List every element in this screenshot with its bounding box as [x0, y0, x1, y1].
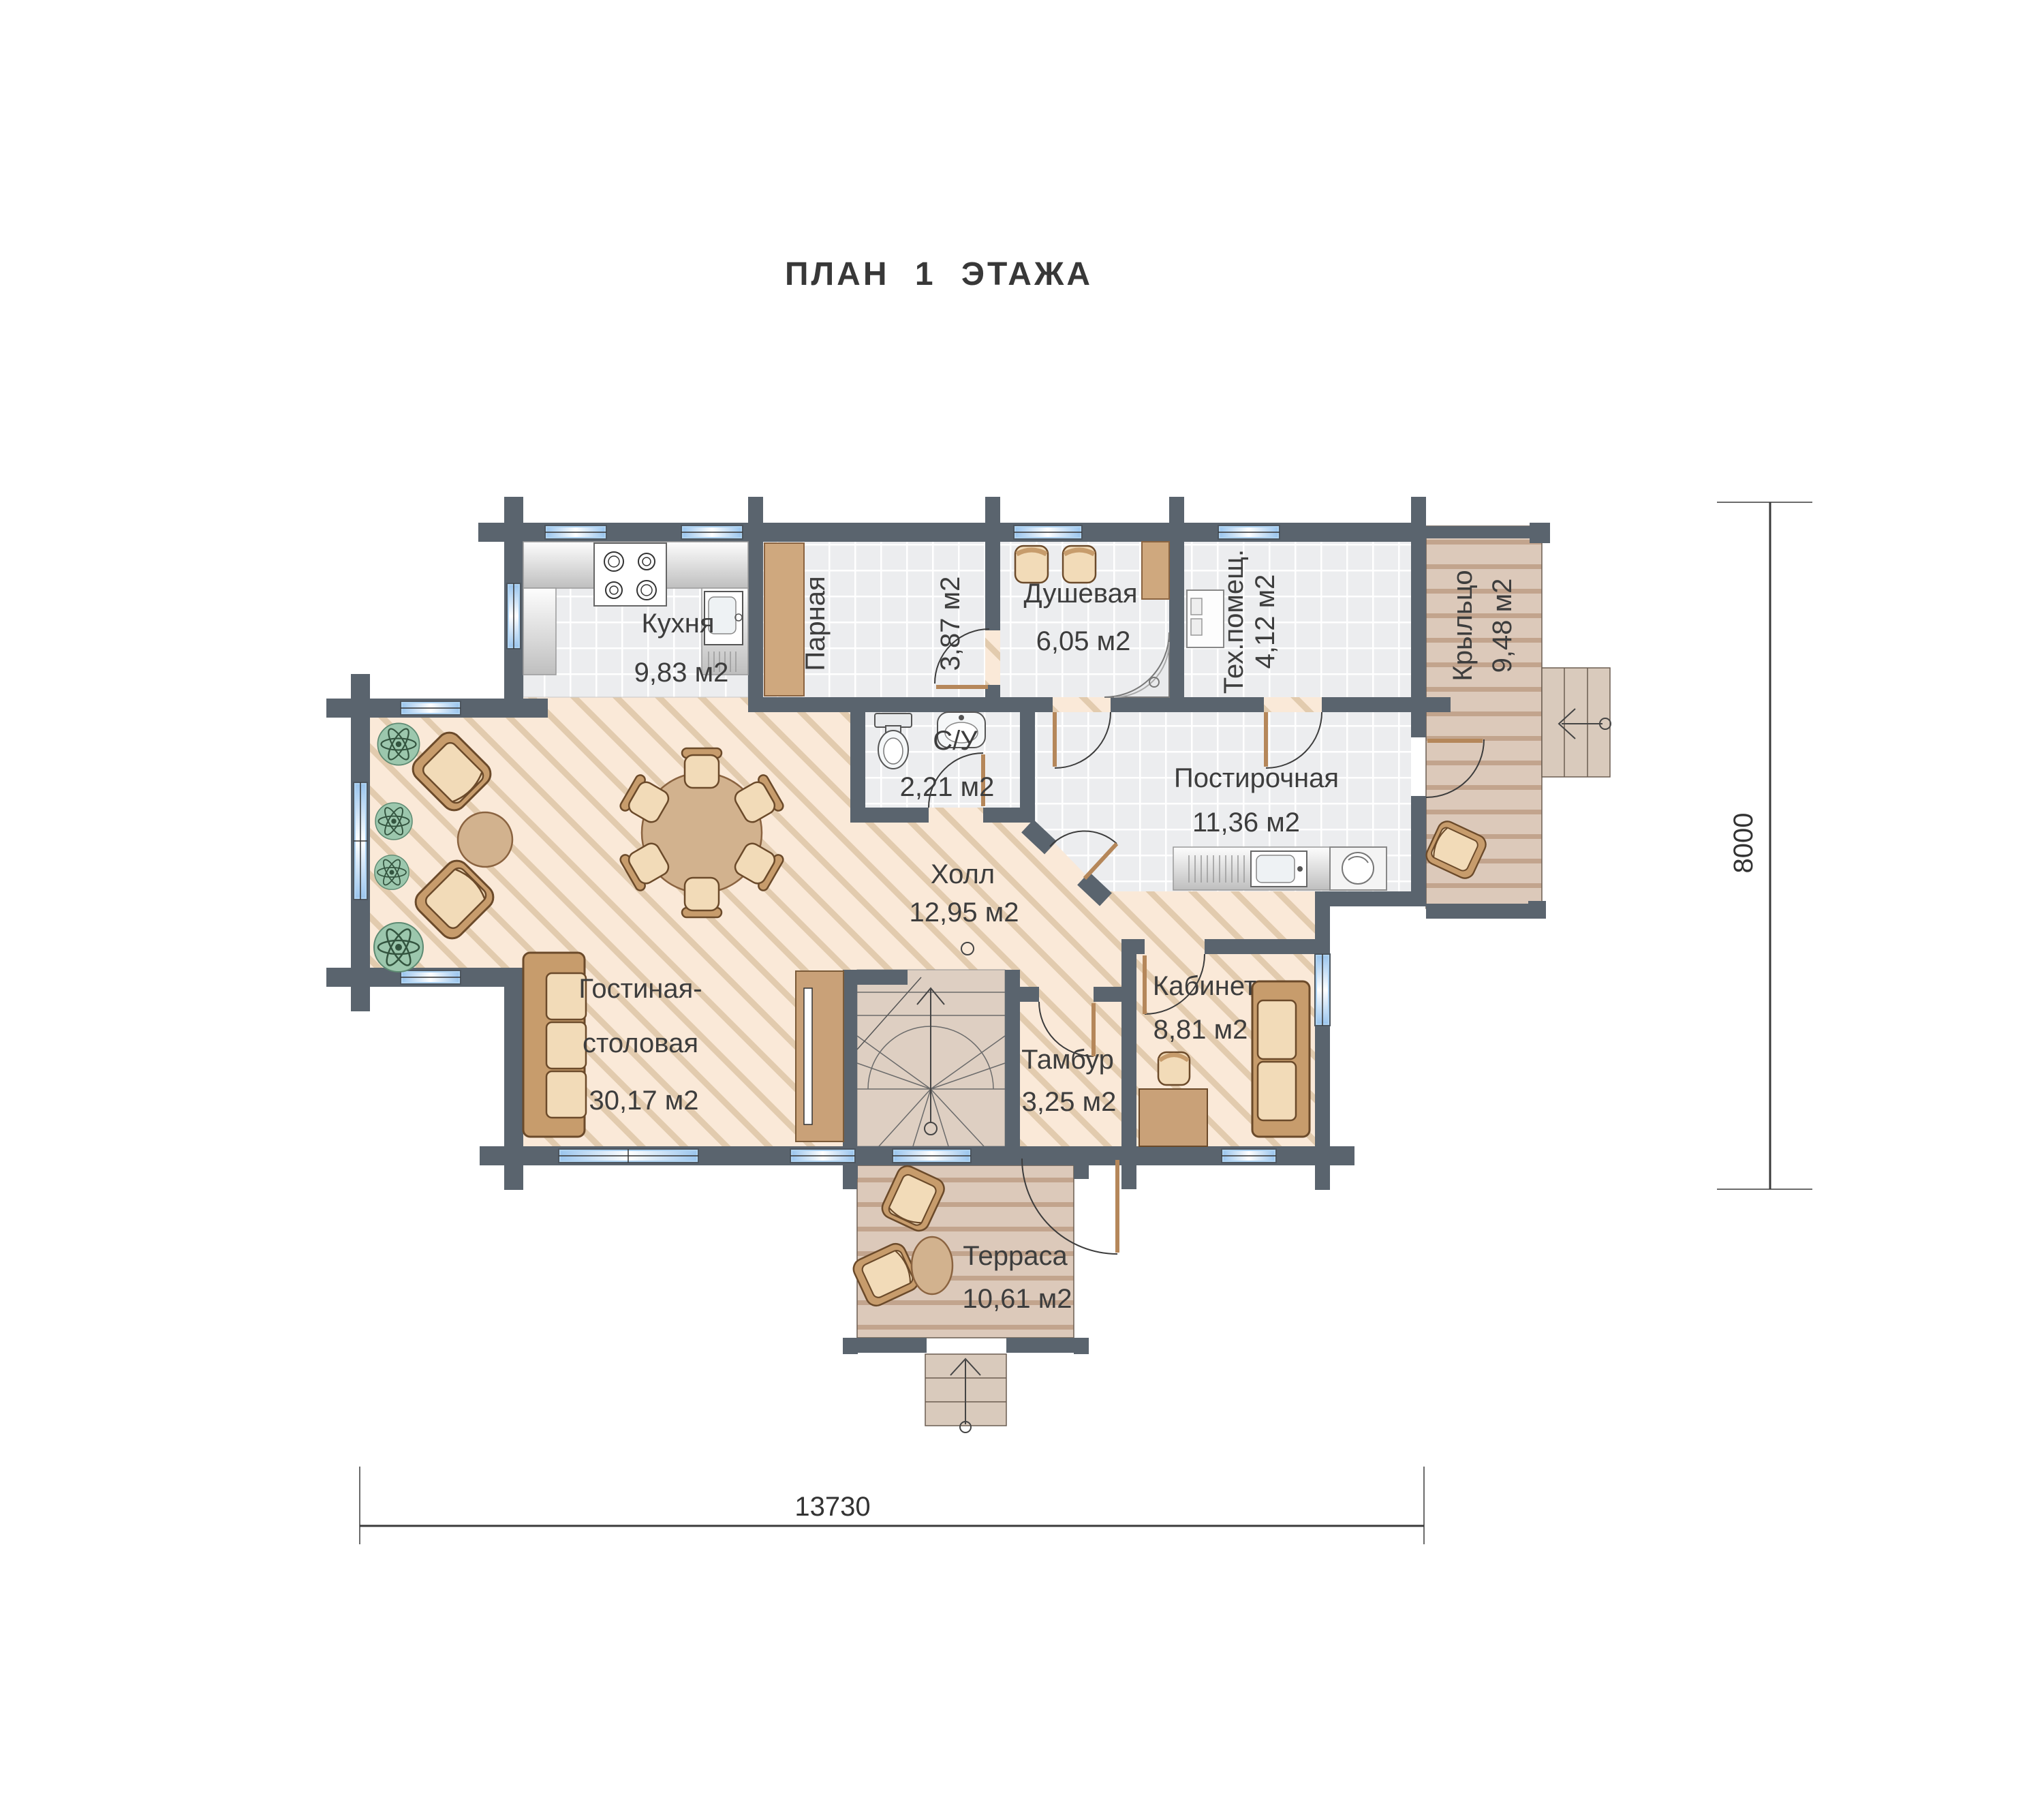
- coffee-table: [458, 812, 512, 867]
- label-office-name: Кабинет: [1153, 971, 1256, 1001]
- window: [681, 525, 743, 539]
- label-living-name1: Гостиная-: [578, 974, 702, 1004]
- label-laundry-area: 11,36 м2: [1192, 808, 1300, 838]
- label-steam-name: Парная: [801, 576, 831, 671]
- office-chair: [1158, 1052, 1190, 1085]
- label-wc-area: 2,21 м2: [900, 772, 995, 802]
- label-kitchen-area: 9,83 м2: [634, 658, 729, 688]
- plant-icon: [374, 923, 423, 972]
- window: [401, 970, 461, 984]
- office-desk: [1139, 1089, 1207, 1146]
- label-steam-area: 3,87 м2: [935, 577, 965, 671]
- window: [893, 1149, 971, 1163]
- label-terrace-area: 10,61 м2: [963, 1284, 1072, 1314]
- dimension-height: 8000: [1729, 813, 1759, 874]
- label-kitchen-name: Кухня: [641, 609, 714, 639]
- plant-icon: [377, 723, 419, 765]
- window: [545, 525, 606, 539]
- label-wc-name: С/У: [933, 726, 978, 756]
- page-title: ПЛАН 1 ЭТАЖА: [785, 256, 1093, 292]
- label-living-name2: столовая: [583, 1028, 698, 1058]
- plant-icon: [375, 855, 409, 889]
- terrace-table: [912, 1237, 953, 1294]
- sauna-shelf: [1142, 542, 1169, 599]
- window: [1218, 525, 1280, 539]
- plant-icon: [375, 803, 412, 840]
- label-tech-name: Тех.помещ.: [1219, 549, 1249, 694]
- staircase: [857, 970, 1005, 1146]
- dimension-width: 13730: [794, 1492, 870, 1522]
- window: [790, 1149, 855, 1163]
- sofa-icon: [523, 953, 586, 1137]
- label-vestibule-area: 3,25 м2: [1022, 1087, 1117, 1117]
- window: [1315, 954, 1330, 1026]
- window: [559, 1149, 698, 1163]
- toilet-icon: [875, 714, 912, 769]
- dining-chair: [682, 878, 722, 917]
- sauna-bench: [764, 543, 804, 696]
- stool-icon: [1015, 546, 1048, 583]
- label-shower-area: 6,05 м2: [1036, 626, 1131, 656]
- label-tech-area: 4,12 м2: [1250, 574, 1280, 669]
- window: [507, 583, 521, 649]
- label-hall-area: 12,95 м2: [910, 898, 1019, 928]
- washing-machine-icon: [1330, 847, 1387, 890]
- label-shower-name: Душевая: [1023, 579, 1137, 609]
- window: [354, 782, 367, 900]
- stove-icon: [594, 543, 666, 606]
- boiler-icon: [1187, 590, 1224, 647]
- tv-cabinet-icon: [796, 971, 843, 1142]
- label-laundry-name: Постирочная: [1174, 763, 1339, 793]
- window: [1014, 525, 1082, 539]
- label-porch-area: 9,48 м2: [1487, 579, 1517, 673]
- window: [1222, 1149, 1276, 1163]
- label-office-area: 8,81 м2: [1153, 1015, 1248, 1045]
- label-living-area: 30,17 м2: [589, 1086, 699, 1116]
- label-hall-name: Холл: [931, 859, 995, 889]
- stool-icon: [1063, 546, 1096, 583]
- window: [401, 701, 461, 715]
- office-sofa-icon: [1252, 981, 1310, 1137]
- dining-chair: [682, 748, 722, 788]
- label-terrace-name: Терраса: [963, 1241, 1068, 1271]
- label-porch-name: Крыльцо: [1448, 570, 1478, 681]
- label-vestibule-name: Тамбур: [1021, 1045, 1114, 1075]
